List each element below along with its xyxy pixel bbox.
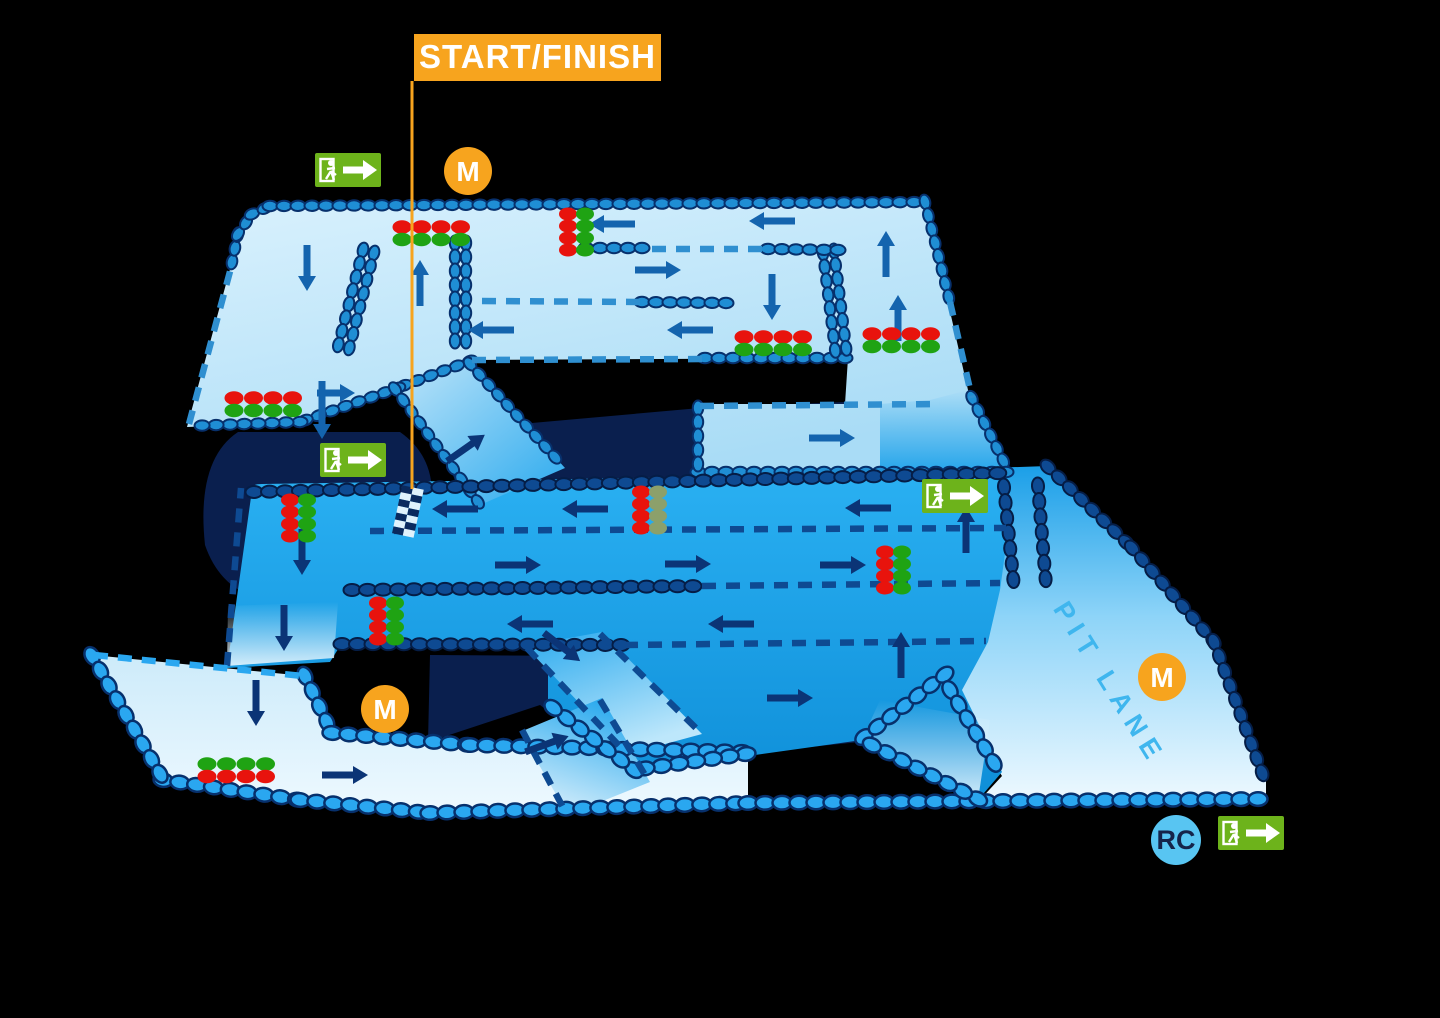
track-light-red [369,597,387,610]
track-light-red [198,770,217,784]
track-light-green [412,233,431,247]
barrier-dot [593,243,608,253]
barrier-dot [486,199,501,209]
barrier-dot [802,244,817,255]
barrier-dot [450,292,460,307]
barrier-dot [760,244,775,255]
track-light-green [793,343,812,357]
track-light-green [576,220,594,233]
barrier-dot [461,320,471,335]
barrier-dot [693,443,703,458]
track-light-red [735,330,754,344]
barrier-dot [822,197,837,207]
track-light-green [386,597,404,610]
barrier-dot [836,197,851,207]
barrier-dot [416,200,431,210]
track-light-green [576,232,594,245]
barrier-dot [458,200,473,210]
barrier-dot-chain [693,401,703,472]
barrier-dot [989,467,1006,479]
barrier-dot [607,243,622,253]
barrier-dot [318,200,333,210]
barrier-dot [436,583,453,595]
barrier-dot [704,298,719,309]
barrier-dot [264,418,279,429]
barrier-dot [498,582,515,594]
barrier-dot [343,584,360,596]
marshal-post-letter: M [1150,662,1173,693]
track-light-red [921,327,940,341]
track-light-red [559,220,577,233]
barrier-dot [635,243,650,253]
track-light-red [244,391,263,405]
track-light-green_dim [649,510,667,523]
race-control-marker: RC [1151,815,1201,865]
barrier-dot [808,197,823,207]
barrier-dot [292,417,307,428]
track-light-red [237,770,256,784]
track-light-red [632,522,650,535]
track-light-red [256,770,275,784]
barrier-dot [892,197,907,207]
track-light-green [921,340,940,354]
barrier-dot [208,420,223,431]
barrier-dot [1248,792,1267,806]
barrier-dot [840,340,852,356]
track-light-red [369,609,387,622]
barrier-dot [648,297,663,308]
barrier-dot [794,198,809,208]
track-light-red [451,220,470,234]
barrier-dot [864,197,879,207]
barrier-dot [374,200,389,210]
barrier-dot [346,200,361,210]
barrier-dot [483,582,500,594]
barrier-dot [236,419,251,430]
barrier-dot [653,580,670,592]
emergency-exit-sign [922,479,988,513]
barrier-dot [333,638,350,650]
barrier-dot [304,200,319,210]
track-light-green [256,757,275,771]
track-light-red [559,232,577,245]
barrier-dot [411,638,428,650]
track-light-red [902,327,921,341]
track-light-green [198,757,217,771]
barrier-dot [662,297,677,308]
track-map: MMMRC START/FINISH PIT LANE [0,0,1440,1018]
track-light-green [893,570,911,583]
track-light-red [876,558,894,571]
barrier-dot [638,581,655,593]
barrier-dot [450,306,460,321]
track-light-green [244,404,263,418]
barrier-dot [426,638,443,650]
track-light-red [264,391,283,405]
barrier-dot [621,243,636,253]
track-light-green [893,558,911,571]
barrier-dot-chain [738,792,1267,810]
barrier-dot [290,201,305,211]
barrier-dot [810,353,825,363]
barrier-dot [542,199,557,209]
track-light-green [298,518,316,531]
barrier-dot [194,420,209,431]
track-light-green_dim [649,498,667,511]
barrier-dot [250,418,265,429]
barrier-dot [461,278,471,293]
barrier-dot [461,306,471,321]
track-light-red [217,770,236,784]
barrier-dot [349,638,366,650]
barrier-dot [450,278,460,293]
track-light-red [632,498,650,511]
track-light-red [225,391,244,405]
barrier-dot [360,200,375,210]
barrier-dot [607,581,624,593]
track-light-red [393,220,412,234]
barrier-dot-chain [698,353,853,363]
track-light-red [281,494,299,507]
marshal-post-letter: M [456,156,479,187]
barrier-dot [576,581,593,593]
barrier-dot [676,297,691,308]
track-light-red [632,486,650,499]
barrier-dot [640,198,655,208]
barrier-dot [581,639,598,651]
track-light-green [298,506,316,519]
barrier-dot [457,638,474,650]
track-light-red [412,220,431,234]
barrier-dot [500,199,515,209]
barrier-dot [598,199,613,209]
barrier-dot [528,199,543,209]
track-light-red [369,621,387,634]
barrier-dot [684,580,701,592]
barrier-dot [591,581,608,593]
barrier-dot [452,583,469,595]
track-light-red [281,506,299,519]
track-light-red [632,510,650,523]
barrier-dot [693,429,703,444]
start-finish-label: START/FINISH [419,38,656,75]
barrier-dot [472,199,487,209]
track-light-green [576,208,594,221]
marshal-post-marker: M [1138,653,1186,701]
barrier-dot [712,353,727,363]
track-light-green [882,340,901,354]
track-light-green [754,343,773,357]
barrier-dot [545,582,562,594]
barrier-dot [693,457,703,472]
barrier-dot [724,198,739,208]
track-light-red [559,208,577,221]
emergency-exit-sign [320,443,386,477]
track-light-green [576,244,594,257]
track-light-red [432,220,451,234]
track-light-green [298,530,316,543]
barrier-dot [654,198,669,208]
track-map-svg: MMMRC START/FINISH PIT LANE [0,0,1440,1018]
track-light-green [393,233,412,247]
barrier-dot [560,581,577,593]
track-light-red [281,530,299,543]
barrier-dot [752,198,767,208]
track-light-green [217,757,236,771]
barrier-dot [461,292,471,307]
barrier-dot [696,198,711,208]
track-light-green [774,343,793,357]
barrier-dot [850,197,865,207]
barrier-dot [402,200,417,210]
barrier-dot [222,419,237,430]
track-light-green_dim [649,522,667,535]
barrier-dot [816,244,831,255]
barrier-dot [421,583,438,595]
barrier-dot [430,200,445,210]
barrier-dot [682,198,697,208]
barrier-dot [514,582,531,594]
barrier-dot [529,582,546,594]
track-light-green [225,404,244,418]
barrier-dot [278,417,293,428]
barrier-dot [718,298,733,309]
track-light-green [386,609,404,622]
barrier-dot [450,334,460,349]
barrier-dot [514,199,529,209]
track-light-red [774,330,793,344]
barrier-dot [504,639,521,651]
barrier-dot [444,200,459,210]
track-light-red [369,633,387,646]
track-light-green [237,757,256,771]
barrier-dot [359,584,376,596]
barrier-dot [450,250,460,265]
track-light-green [386,633,404,646]
barrier-dot [738,198,753,208]
track-light-red [281,518,299,531]
barrier-dot [374,584,391,596]
track-light-green [902,340,921,354]
barrier-dot [461,250,471,265]
barrier-dot [780,198,795,208]
emergency-exit-sign [1218,816,1284,850]
barrier-dot [878,197,893,207]
barrier-dot [442,638,459,650]
race-control-letters: RC [1157,825,1196,855]
track-light-green [893,582,911,595]
barrier-dot [276,201,291,211]
track-light-red [882,327,901,341]
barrier-dot [332,200,347,210]
track-light-green [386,621,404,634]
barrier-dot [690,297,705,308]
track-light-red [863,327,882,341]
barrier-dot [830,245,845,256]
barrier-dot [710,198,725,208]
barrier-dot [390,583,407,595]
track-light-red [559,244,577,257]
barrier-dot [622,581,639,593]
barrier-dot [626,199,641,209]
barrier-dot [693,415,703,430]
emergency-exit-sign [315,153,381,187]
barrier-dot [1039,570,1052,588]
track-light-green [283,404,302,418]
barrier-dot [461,264,471,279]
barrier-dot [262,201,277,211]
barrier-dot [488,639,505,651]
track-light-green [264,404,283,418]
barrier-dot [668,198,683,208]
barrier-dot [467,582,484,594]
marshal-post-marker: M [444,147,492,195]
barrier-dot [450,320,460,335]
track-light-green [863,340,882,354]
track-light-green [893,546,911,559]
track-light-red [876,570,894,583]
barrier-dot [774,244,789,255]
barrier-dot [829,342,841,358]
track-light-green [432,233,451,247]
track-light-green_dim [649,486,667,499]
track-light-red [793,330,812,344]
barrier-dot [405,583,422,595]
track-light-green [298,494,316,507]
barrier-dot [388,200,403,210]
barrier-dot [766,198,781,208]
marshal-post-letter: M [373,694,396,725]
barrier-dot [669,580,686,592]
track-light-green [451,233,470,247]
barrier-dot [1007,570,1021,588]
barrier-dot [788,244,803,255]
barrier-dot [450,264,460,279]
marshal-post-marker: M [361,685,409,733]
track-light-green [735,343,754,357]
barrier-dot [612,199,627,209]
track-light-red [754,330,773,344]
track-light-red [876,582,894,595]
barrier-dot [461,334,471,349]
barrier-dot [473,638,490,650]
track-light-red [876,546,894,559]
track-light-red [283,391,302,405]
